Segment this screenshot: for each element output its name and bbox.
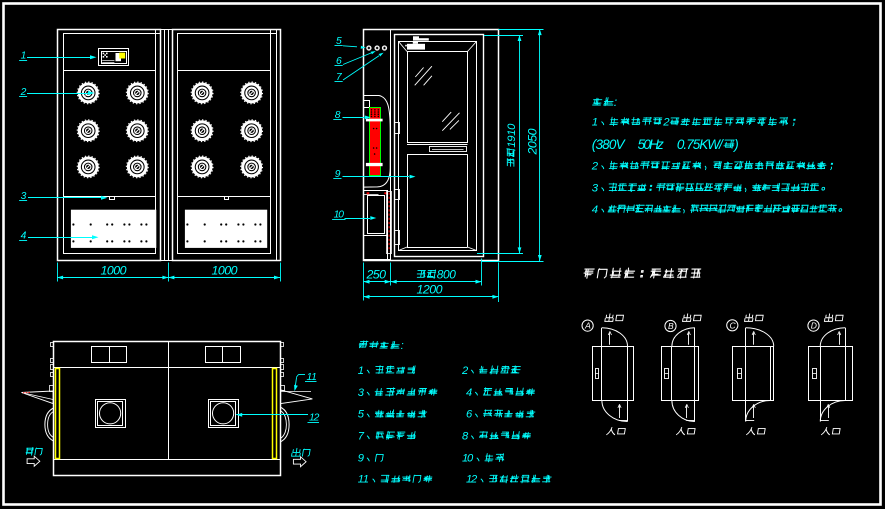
svg-text:2: 2 bbox=[461, 365, 469, 377]
svg-text:3: 3 bbox=[358, 387, 365, 399]
svg-text:C: C bbox=[730, 320, 737, 330]
svg-text:1: 1 bbox=[21, 51, 27, 62]
svg-text:1200: 1200 bbox=[417, 283, 443, 297]
svg-text:2: 2 bbox=[662, 117, 670, 129]
svg-text:5: 5 bbox=[358, 409, 365, 421]
svg-text:50Hz: 50Hz bbox=[638, 137, 664, 152]
svg-text:D: D bbox=[811, 321, 817, 331]
svg-text:1000: 1000 bbox=[212, 264, 238, 278]
svg-text:1910: 1910 bbox=[506, 123, 518, 148]
svg-text:12: 12 bbox=[466, 474, 478, 486]
svg-text:4: 4 bbox=[21, 230, 27, 241]
svg-text:8: 8 bbox=[462, 431, 469, 443]
svg-text:4: 4 bbox=[466, 387, 472, 399]
svg-text:1: 1 bbox=[358, 365, 364, 377]
svg-text:A: A bbox=[584, 321, 591, 331]
svg-text:0.75KW/: 0.75KW/ bbox=[677, 137, 724, 152]
svg-text:12: 12 bbox=[309, 412, 320, 423]
svg-text:2050: 2050 bbox=[526, 128, 540, 155]
svg-text:11: 11 bbox=[358, 474, 369, 486]
svg-text:1: 1 bbox=[592, 117, 598, 129]
svg-text:7: 7 bbox=[358, 431, 365, 443]
svg-text::: : bbox=[401, 340, 404, 352]
svg-text:4: 4 bbox=[592, 204, 598, 216]
svg-text:3: 3 bbox=[592, 183, 599, 195]
svg-text:9: 9 bbox=[358, 453, 364, 465]
svg-text::: : bbox=[614, 95, 617, 109]
svg-text:10: 10 bbox=[334, 209, 345, 220]
svg-text:B: B bbox=[668, 321, 674, 331]
svg-text:1000: 1000 bbox=[101, 264, 127, 278]
svg-text:2: 2 bbox=[591, 161, 599, 173]
svg-text:6: 6 bbox=[466, 409, 473, 421]
svg-text:10: 10 bbox=[462, 453, 474, 465]
svg-text:800: 800 bbox=[437, 267, 457, 281]
svg-text:250: 250 bbox=[366, 267, 387, 281]
svg-text:(380V: (380V bbox=[592, 137, 627, 152]
